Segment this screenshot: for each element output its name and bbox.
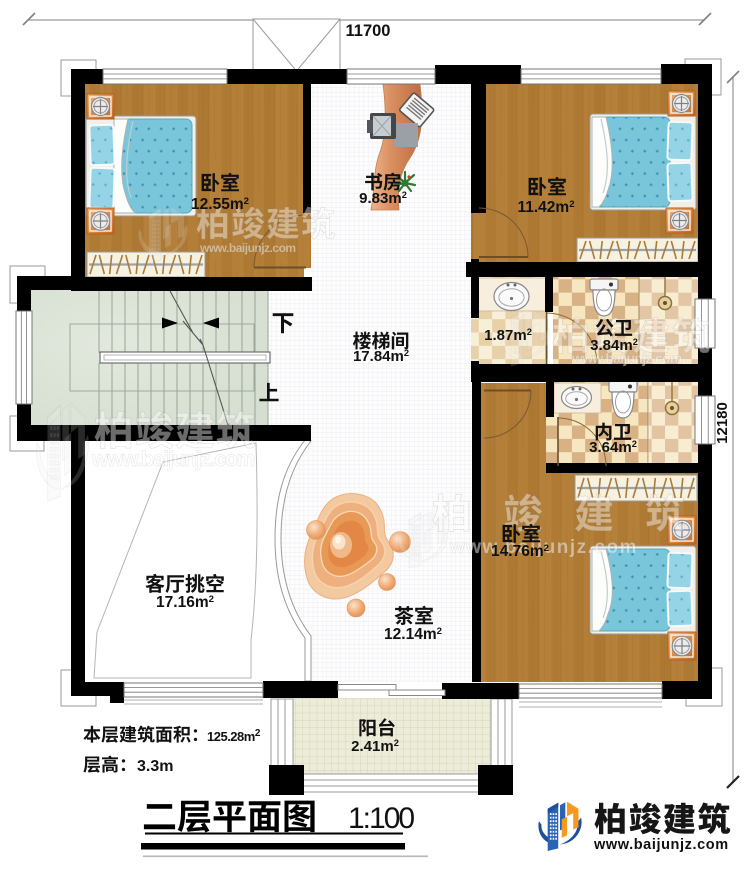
svg-text:125.28m2: 125.28m2 [207,728,261,744]
svg-text:12.55m2: 12.55m2 [191,196,249,213]
svg-text:11.42m2: 11.42m2 [517,199,574,216]
svg-text:3.84m2: 3.84m2 [590,337,638,354]
svg-text:17.84m2: 17.84m2 [353,348,409,365]
svg-text:17.16m2: 17.16m2 [156,594,214,611]
svg-text:2.41m2: 2.41m2 [351,738,399,755]
svg-text:3.3m: 3.3m [137,758,173,775]
svg-text:www.baijunjz.com: www.baijunjz.com [91,448,255,471]
svg-text:12.14m2: 12.14m2 [384,626,442,643]
svg-text:www.baijunjz.com: www.baijunjz.com [199,241,296,255]
svg-text:9.83m2: 9.83m2 [359,190,407,207]
svg-text:1:100: 1:100 [348,802,414,835]
svg-text:www.baijunjz.com: www.baijunjz.com [593,837,729,853]
svg-text:3.64m2: 3.64m2 [589,439,637,456]
svg-text:14.76m2: 14.76m2 [491,543,549,560]
svg-text:12180: 12180 [714,402,731,444]
svg-text:11700: 11700 [346,22,391,40]
svg-text:1.87m2: 1.87m2 [484,327,532,344]
